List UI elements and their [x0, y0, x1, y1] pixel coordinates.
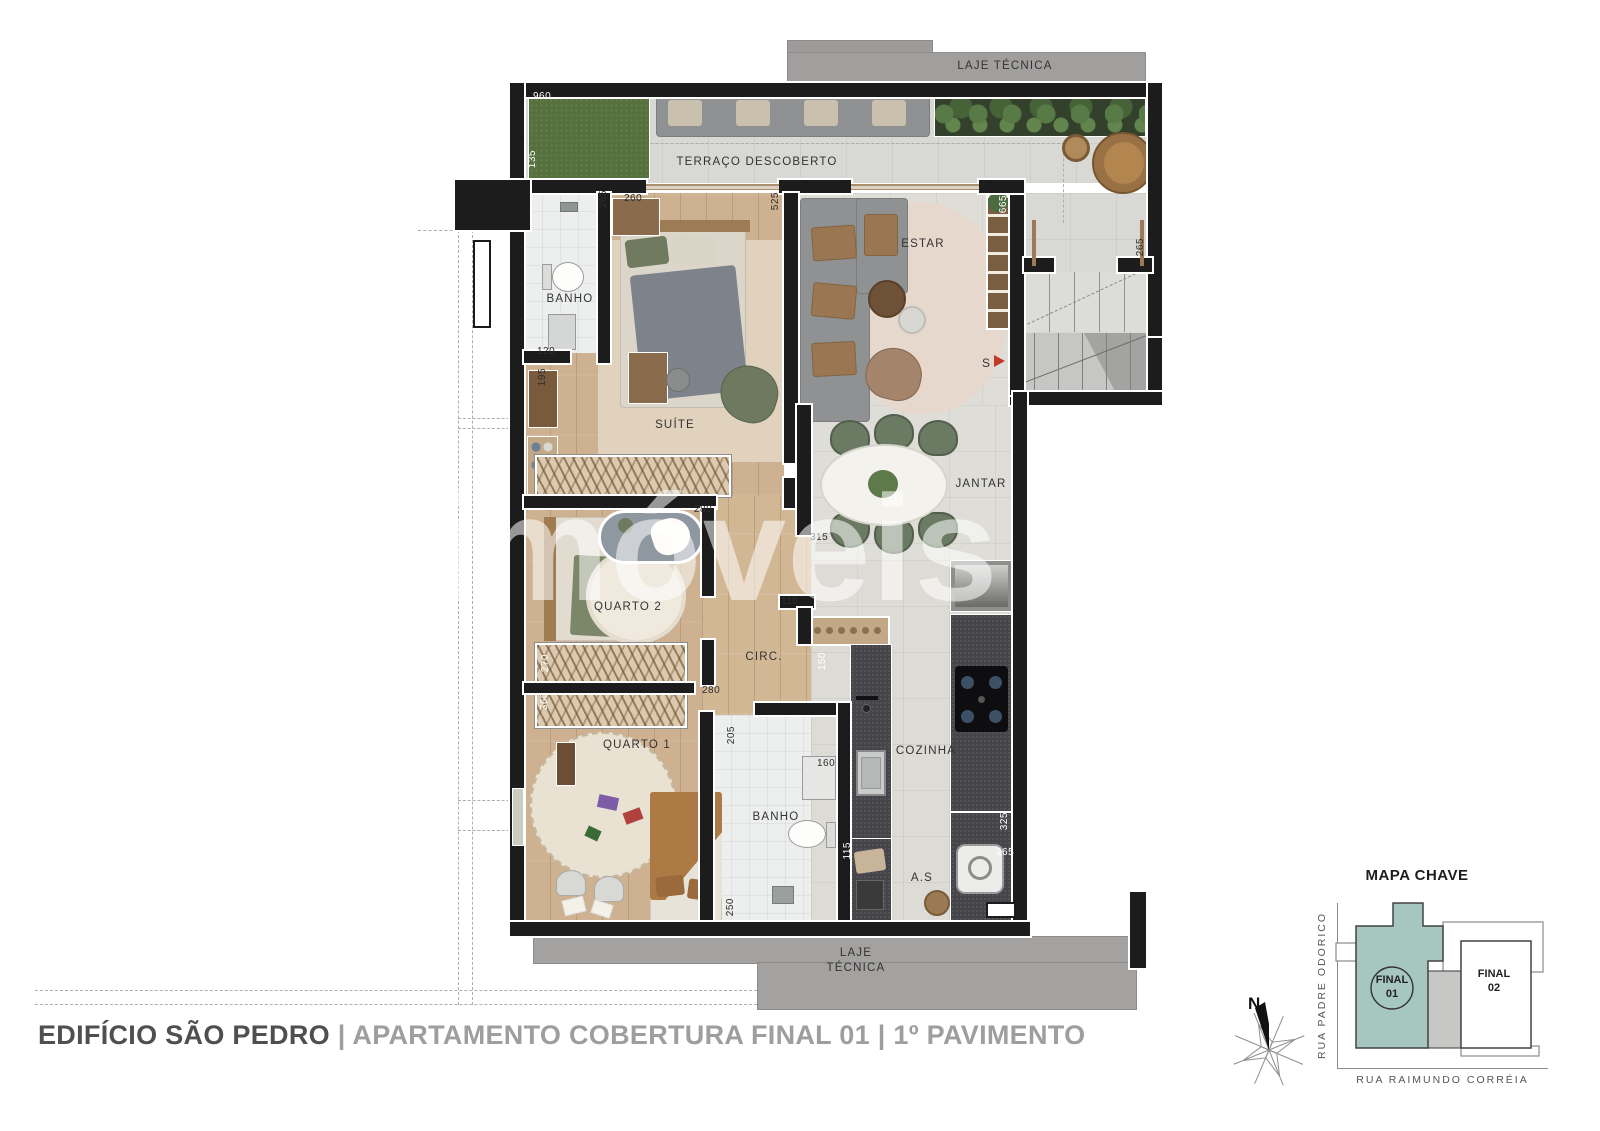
wall — [1118, 258, 1152, 272]
toilet — [552, 262, 584, 292]
wall — [598, 193, 610, 363]
room-label: TERRAÇO DESCOBERTO — [647, 155, 867, 170]
wall — [1010, 180, 1024, 395]
dimension-label: 205 — [727, 726, 737, 744]
wall — [524, 83, 1162, 97]
floorplan-page: S netimóveis EDIFÍCIO SÃO PEDRO | APARTA… — [0, 0, 1600, 1131]
watermark: netimóveis — [205, 462, 999, 635]
burner — [961, 676, 974, 689]
street-label-left: RUA PADRE ODORICO — [1316, 903, 1328, 1068]
faucet-icon — [856, 696, 878, 700]
kitchen-sink-bowl — [861, 757, 881, 789]
keymap-unit2-label: FINAL 02 — [1462, 968, 1526, 996]
cooktop — [955, 666, 1008, 732]
faucet-base — [862, 704, 871, 713]
sofa-cushion — [668, 100, 702, 126]
room-label: LAJE TÉCNICA — [895, 59, 1115, 74]
window-slot — [986, 902, 1016, 918]
wall — [1148, 338, 1162, 396]
suite-desk — [628, 352, 668, 404]
room-label: CIRC. — [654, 650, 874, 665]
suite-pillow — [624, 236, 669, 269]
wall — [1024, 258, 1054, 272]
room-label: ESTAR — [813, 237, 1033, 252]
sofa-cushion — [811, 282, 858, 320]
boundary-dashline — [35, 990, 757, 991]
wall — [1013, 392, 1027, 924]
dimension-label: 525 — [771, 192, 781, 210]
room-label: BANHO — [666, 810, 886, 825]
planter — [934, 93, 1146, 137]
suite-pillow — [671, 234, 717, 265]
dimension-label: 665 — [999, 195, 1009, 213]
kid-chair — [594, 876, 624, 902]
coffee-table-small — [898, 306, 926, 334]
dimension-label: 115 — [843, 842, 853, 859]
dimension-label: 150 — [818, 652, 828, 670]
stairs-arrow-icon — [994, 355, 1005, 367]
wall — [779, 180, 851, 193]
dimension-label: 120 — [537, 347, 555, 357]
dimension-label: 265 — [996, 848, 1014, 858]
wall — [1130, 892, 1146, 968]
dimension-label: 260 — [624, 194, 642, 204]
suite-terrace-door — [646, 184, 779, 190]
sink — [548, 314, 576, 350]
unit-and-floor: APARTAMENTO COBERTURA FINAL 01 | 1º PAVI… — [352, 1020, 1085, 1050]
room-label: LAJE TÉCNICA — [746, 946, 966, 976]
stair-upper-flight — [1024, 272, 1148, 332]
dimension-label: 195 — [538, 368, 548, 386]
page-title: EDIFÍCIO SÃO PEDRO | APARTAMENTO COBERTU… — [38, 1020, 1085, 1051]
dimension-label: 325 — [1000, 812, 1010, 830]
keymap-title: MAPA CHAVE — [1322, 867, 1512, 884]
room-label: COZINHA — [816, 744, 1036, 759]
room-label: BANHO — [460, 292, 680, 307]
dimension-label: 160 — [817, 759, 835, 769]
estar-terrace-door — [851, 184, 979, 190]
stair-diagonal — [1010, 333, 1148, 390]
dimension-label: 960 — [533, 92, 551, 102]
wall — [979, 180, 1024, 193]
sofa-cushion — [811, 341, 857, 377]
wall-protrusion — [455, 180, 530, 230]
sofa-cushion — [736, 100, 770, 126]
dimension-label: 135 — [528, 150, 538, 168]
title-separator: | — [330, 1020, 352, 1050]
side-table — [1062, 134, 1090, 162]
compass: N — [1224, 988, 1314, 1088]
stairs-direction-label: S — [982, 356, 990, 370]
stool — [924, 890, 950, 916]
shower-head-icon — [560, 202, 578, 212]
wall — [510, 922, 1030, 936]
shower-drain — [772, 886, 794, 904]
wall — [784, 193, 798, 463]
room-label: A.S — [812, 871, 1032, 886]
wall — [1148, 83, 1162, 338]
dimension-label: 250 — [726, 898, 736, 916]
wall — [524, 180, 646, 193]
dimension-label: 265 — [599, 190, 609, 208]
desk-chair — [666, 368, 690, 392]
compass-north-label: N — [1248, 994, 1260, 1014]
grass-patch — [528, 97, 650, 179]
toilet-tank — [826, 822, 836, 848]
room-label: QUARTO 1 — [527, 738, 747, 753]
street-label-bottom: RUA RAIMUNDO CORRÉIA — [1337, 1074, 1548, 1086]
exterior-ledge — [473, 240, 491, 328]
q1-wardrobe — [535, 690, 687, 728]
room-label: SUÍTE — [565, 418, 785, 433]
lounge-chair-seat — [1104, 142, 1144, 184]
keymap-axis — [1337, 1068, 1548, 1069]
wall — [755, 703, 847, 715]
dimension-label: 265 — [1136, 238, 1146, 256]
kid-chair — [556, 870, 586, 896]
boundary-dashline — [35, 1004, 757, 1005]
dining-chair — [918, 420, 958, 456]
q1-window — [512, 788, 524, 846]
building-name: EDIFÍCIO SÃO PEDRO — [38, 1020, 330, 1050]
dimension-label: 280 — [702, 686, 720, 696]
stair-diagonal — [1024, 272, 1148, 329]
dimension-label: 270 — [541, 654, 551, 672]
boundary-dashline — [418, 230, 458, 231]
keymap-unit1-label: FINAL 01 — [1364, 974, 1420, 1002]
q1-pillow — [655, 875, 685, 898]
wall — [1010, 392, 1162, 405]
sofa-cushion — [872, 100, 906, 126]
toilet-tank — [542, 264, 552, 290]
sofa-cushion — [804, 100, 838, 126]
dimension-label: 360 — [540, 692, 550, 710]
compass-rose-icon — [1224, 988, 1314, 1088]
stair-lower-flight — [1010, 333, 1148, 392]
